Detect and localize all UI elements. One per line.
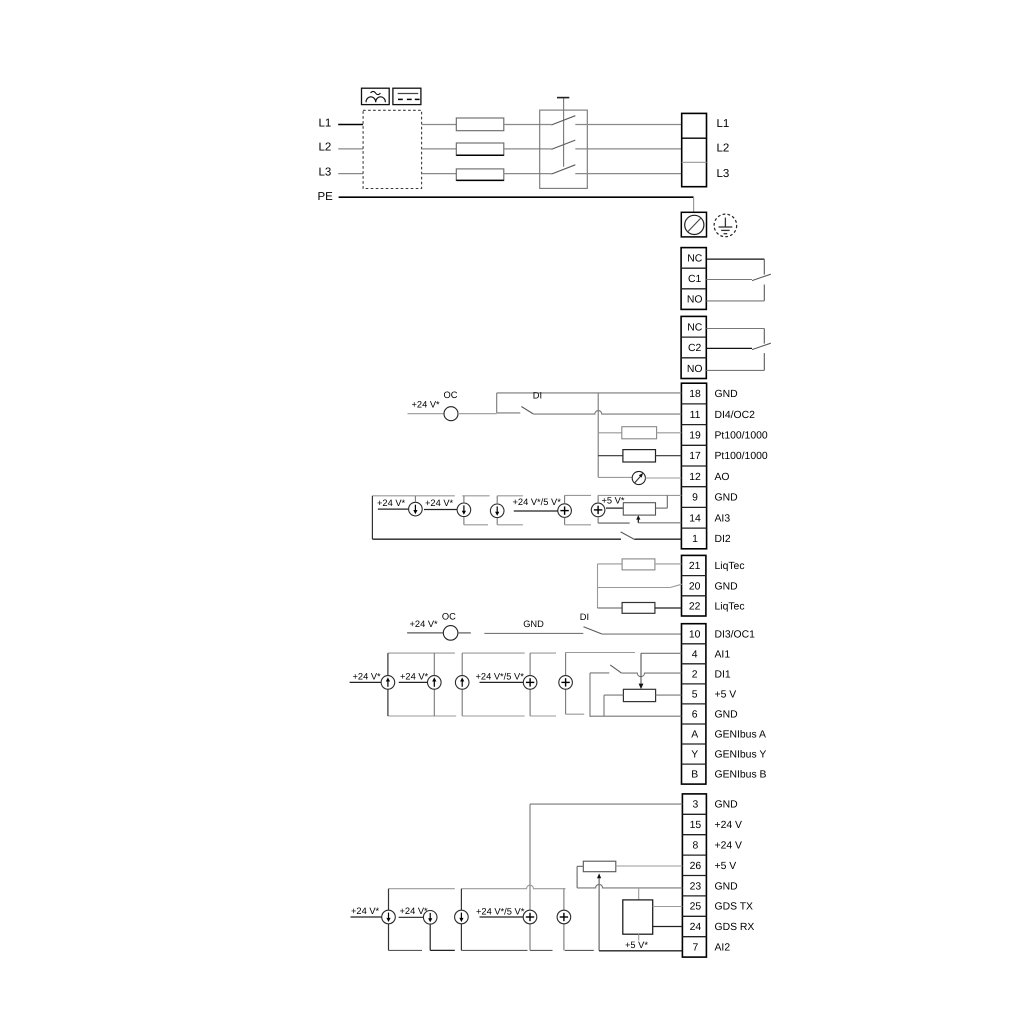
svg-text:AO: AO [715,472,730,483]
svg-text:Pt100/1000: Pt100/1000 [715,451,768,462]
svg-text:GND: GND [715,800,738,811]
svg-text:NO: NO [687,295,703,306]
svg-text:+24 V*: +24 V* [410,619,439,629]
svg-text:GDS TX: GDS TX [715,902,754,913]
svg-text:+24 V*/5 V*: +24 V*/5 V* [476,907,525,917]
svg-text:GENIbus Y: GENIbus Y [715,750,767,761]
svg-text:3: 3 [693,800,699,811]
svg-text:+24 V*/5 V*: +24 V*/5 V* [513,497,562,507]
svg-text:GENIbus B: GENIbus B [715,770,767,781]
svg-text:Pt100/1000: Pt100/1000 [715,431,768,442]
svg-text:7: 7 [693,943,699,954]
svg-text:19: 19 [689,431,701,442]
svg-text:23: 23 [690,881,702,892]
svg-text:6: 6 [692,710,698,721]
svg-text:26: 26 [690,861,702,872]
svg-text:PE: PE [318,191,334,203]
svg-text:24: 24 [690,922,702,933]
svg-text:LiqTec: LiqTec [715,561,745,572]
svg-text:22: 22 [689,602,701,613]
svg-text:AI3: AI3 [715,513,731,524]
svg-text:+5 V*: +5 V* [602,496,625,506]
svg-text:8: 8 [693,841,699,852]
svg-text:GND: GND [715,581,738,592]
svg-text:+5 V: +5 V [715,690,737,701]
svg-text:GND: GND [715,881,738,892]
svg-text:L1: L1 [717,118,730,130]
svg-text:+24 V*: +24 V* [353,671,382,681]
svg-text:+24 V: +24 V [715,820,743,831]
svg-text:C1: C1 [688,274,702,285]
svg-text:LiqTec: LiqTec [715,602,745,613]
svg-text:DI: DI [580,612,589,622]
svg-text:4: 4 [692,649,698,660]
svg-text:B: B [691,770,698,781]
svg-text:9: 9 [692,493,698,504]
svg-text:+24 V*: +24 V* [412,400,441,410]
svg-text:15: 15 [690,820,702,831]
svg-text:NO: NO [687,364,703,375]
svg-text:GND: GND [715,389,738,400]
svg-text:12: 12 [689,472,701,483]
svg-text:+24 V*: +24 V* [400,671,429,681]
svg-text:18: 18 [689,389,701,400]
svg-text:+24 V*: +24 V* [351,906,380,916]
svg-text:DI4/OC2: DI4/OC2 [715,410,756,421]
svg-text:17: 17 [689,451,701,462]
svg-text:NC: NC [687,254,703,265]
svg-text:L1: L1 [319,117,332,129]
svg-text:21: 21 [689,561,701,572]
svg-text:+24 V*/5 V*: +24 V*/5 V* [476,671,525,681]
svg-text:OC: OC [442,612,456,622]
svg-text:OC: OC [444,390,458,400]
svg-text:20: 20 [689,581,701,592]
svg-text:10: 10 [689,629,701,640]
svg-text:5: 5 [692,690,698,701]
svg-text:+5 V*: +5 V* [625,940,648,950]
svg-text:NC: NC [687,322,703,333]
svg-text:+24 V*: +24 V* [400,906,429,916]
svg-text:A: A [691,730,698,741]
svg-text:DI2: DI2 [715,534,731,545]
svg-text:+24 V: +24 V [715,841,743,852]
svg-text:GND: GND [523,619,544,629]
svg-text:GND: GND [715,710,738,721]
svg-text:Y: Y [691,750,698,761]
svg-text:1: 1 [692,534,698,545]
svg-text:GDS RX: GDS RX [715,922,755,933]
svg-text:L3: L3 [319,166,332,178]
svg-text:+24 V*: +24 V* [377,498,406,508]
svg-text:+24 V*: +24 V* [425,498,454,508]
svg-text:11: 11 [690,410,701,421]
svg-text:+5 V: +5 V [715,861,737,872]
svg-text:25: 25 [690,902,702,913]
svg-text:GENIbus A: GENIbus A [715,730,766,741]
svg-text:2: 2 [692,669,698,680]
svg-text:L2: L2 [717,143,730,155]
svg-text:C2: C2 [688,343,702,354]
svg-text:DI: DI [533,391,542,401]
svg-text:DI1: DI1 [715,669,731,680]
svg-text:L2: L2 [319,141,332,153]
svg-text:14: 14 [689,513,701,524]
svg-text:AI2: AI2 [715,943,731,954]
svg-text:AI1: AI1 [715,649,731,660]
svg-text:GND: GND [715,493,738,504]
svg-text:L3: L3 [717,168,730,180]
svg-text:DI3/OC1: DI3/OC1 [715,629,756,640]
